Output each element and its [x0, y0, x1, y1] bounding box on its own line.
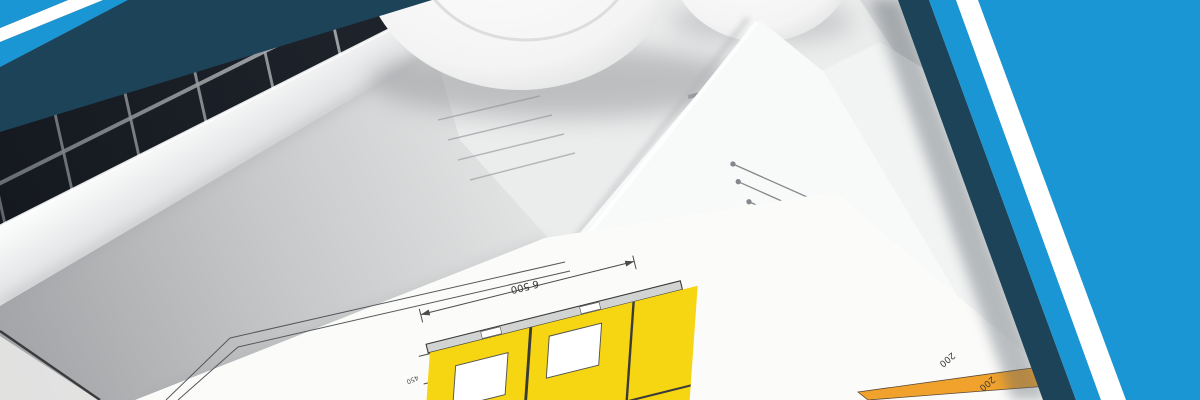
- hero-photo-illustration: 6 500 450 350: [0, 0, 1200, 400]
- hero-banner: 6 500 450 350: [0, 0, 1200, 400]
